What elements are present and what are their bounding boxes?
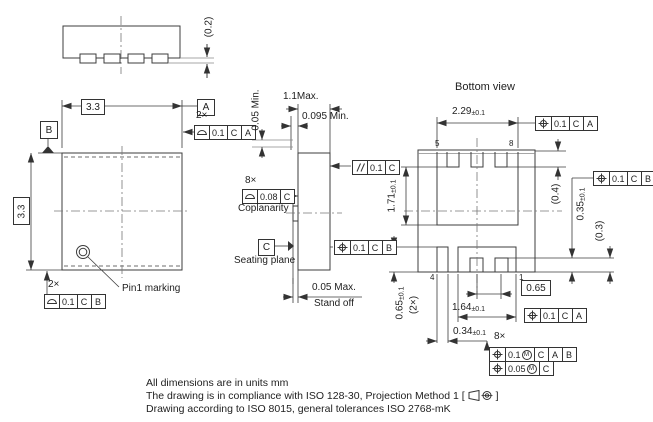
fcf-profile-top: 0.1 C A [194,125,256,140]
pin-number-8: 8 [509,140,513,148]
profile-symbol-icon [195,126,209,139]
dim-lead-length-min: 0.095 Min. [302,112,349,123]
fcf-datum: A [572,309,586,322]
position-symbol-icon [335,241,350,254]
datum-c-box: C [258,239,275,256]
dim-notch-depth: (0.3) [595,221,606,242]
dim-pitch-box: 0.65 [521,280,551,296]
fcf-position-top: 0.1 C A [535,116,598,131]
fcf-datum: B [382,241,396,254]
dim-body-width-box: 3.3 [81,99,105,115]
position-symbol-icon [594,172,609,185]
count-2x-bottom: 2× [48,280,59,291]
dim-pad-top-width: 2.29±0.1 [452,107,485,118]
count-2x-top: 2× [196,111,207,122]
fcf-tolerance: 0.1 [367,161,385,174]
fcf-position-right: 0.1 C B [593,171,653,186]
fcf-tolerance-with-modifier: 0.05M [505,362,539,375]
dim-lead-thickness: (0.2) [204,17,215,38]
position-symbol-icon [490,348,505,361]
dim-value: 1.64 [452,302,471,313]
bottom-view-title: Bottom view [455,82,515,94]
dim-source-pad-width: 1.64±0.1 [452,303,485,314]
note-projection: The drawing is in compliance with ISO 12… [146,390,499,404]
profile-symbol-icon [45,295,59,308]
top-view-centerlines [54,146,190,278]
dim-height-min: 0.05 Min. [251,89,262,130]
fcf-position-8x-a: 0.1M C A B [489,347,577,362]
note-projection-bracket: ] [496,390,499,402]
fcf-datum: A [583,117,597,130]
fcf-tolerance: 0.1 [540,309,558,322]
dim-value: 2.29 [452,106,471,117]
dim-bottom-terminal-length: 0.35±0.1 [576,187,587,220]
fcf-datum: C [77,295,91,308]
dim-tolerance: ±0.1 [391,179,398,193]
fcf-tolerance: 0.08 [257,190,280,203]
fcf-datum: C [569,117,583,130]
fcf-datum: B [641,172,653,185]
pin-number-4: 4 [430,274,434,282]
fcf-tolerance-with-modifier: 0.1M [505,348,534,361]
fcf-datum: C [539,362,553,375]
dim-tolerance: ±0.1 [471,110,485,117]
source-pad [458,247,516,272]
dim-gate-pad-height: 0.65±0.1 [395,286,406,319]
dim-body-height: 3.3 [16,204,27,218]
fcf-datum: A [548,348,562,361]
gate-pad [437,247,448,272]
pin-number-5: 5 [435,140,439,148]
fcf-tolerance: 0.1 [209,126,227,139]
note-units: All dimensions are in units mm [146,377,288,389]
count-8x-position: 8× [494,332,505,343]
position-symbol-icon [490,362,505,375]
fcf-tolerance: 0.1 [350,241,368,254]
fcf-tolerance: 0.1 [609,172,627,185]
position-symbol-icon [525,309,540,322]
note-projection-text: The drawing is in compliance with ISO 12… [146,390,465,402]
first-angle-projection-icon [467,390,494,404]
fcf-datum: C [280,190,294,203]
fcf-datum: C [227,126,241,139]
pin1-marking-label: Pin1 marking [122,284,180,295]
stand-off-label: Stand off [314,299,354,310]
dim-tolerance: ±0.1 [472,330,486,337]
datum-b-box: B [40,121,58,139]
fcf-datum: B [91,295,105,308]
dim-top-terminal-length: (0.4) [551,184,562,205]
fcf-tolerance: 0.05 [508,364,526,374]
side-view-outline [293,153,330,284]
profile-symbol-icon [243,190,257,203]
mmc-modifier-icon: M [527,364,537,374]
parallelism-symbol-icon [353,161,367,174]
drain-pad [437,152,518,225]
count-8x-coplanarity: 8× [245,176,256,187]
fcf-datum: B [562,348,576,361]
mmc-modifier-icon: M [522,350,532,360]
fcf-datum: C [534,348,548,361]
seating-plane-label: Seating plane [234,256,295,267]
fcf-datum: C [368,241,382,254]
fcf-datum: C [385,161,399,174]
dim-drain-pad-height: 1.71±0.1 [387,179,398,212]
note-tolerances: Drawing according to ISO 8015, general t… [146,403,451,415]
dim-height-max: 1.1Max. [283,92,319,103]
dim-tolerance: ±0.1 [580,187,587,201]
dim-tolerance: ±0.1 [471,306,485,313]
fcf-datum: C [627,172,641,185]
dim-value: 1.71 [387,193,398,212]
pin-number-1: 1 [519,274,523,282]
fcf-profile-bottom: 0.1 C B [44,294,106,309]
technical-drawing-canvas: (0.2) 3.3 A 2× 0.1 C A B 3.3 2× 0.1 C B … [0,0,653,422]
position-symbol-icon [536,117,551,130]
coplanarity-label: Coplanarity [238,204,289,215]
front-view-outline [63,26,214,78]
dim-tolerance: ±0.1 [399,286,406,300]
dim-standoff-max: 0.05 Max. [312,283,356,294]
dim-value: 0.65 [395,300,406,319]
fcf-parallelism: 0.1 C [352,160,400,175]
fcf-datum: C [558,309,572,322]
dim-gate-pad-width: 0.34±0.1 [453,327,486,338]
fcf-tolerance: 0.1 [551,117,569,130]
fcf-position-8x-b: 0.05M C [489,361,554,376]
dim-value: 0.35 [576,201,587,220]
fcf-tolerance: 0.1 [59,295,77,308]
fcf-position-side: 0.1 C B [334,240,397,255]
dim-value: 0.34 [453,326,472,337]
dim-body-height-box: 3.3 [13,197,30,225]
fcf-position-bottom: 0.1 C A [524,308,587,323]
fcf-coplanarity: 0.08 C [242,189,295,204]
fcf-tolerance: 0.1 [508,350,521,360]
dim-gate-pad-height-count: (2×) [409,296,420,314]
